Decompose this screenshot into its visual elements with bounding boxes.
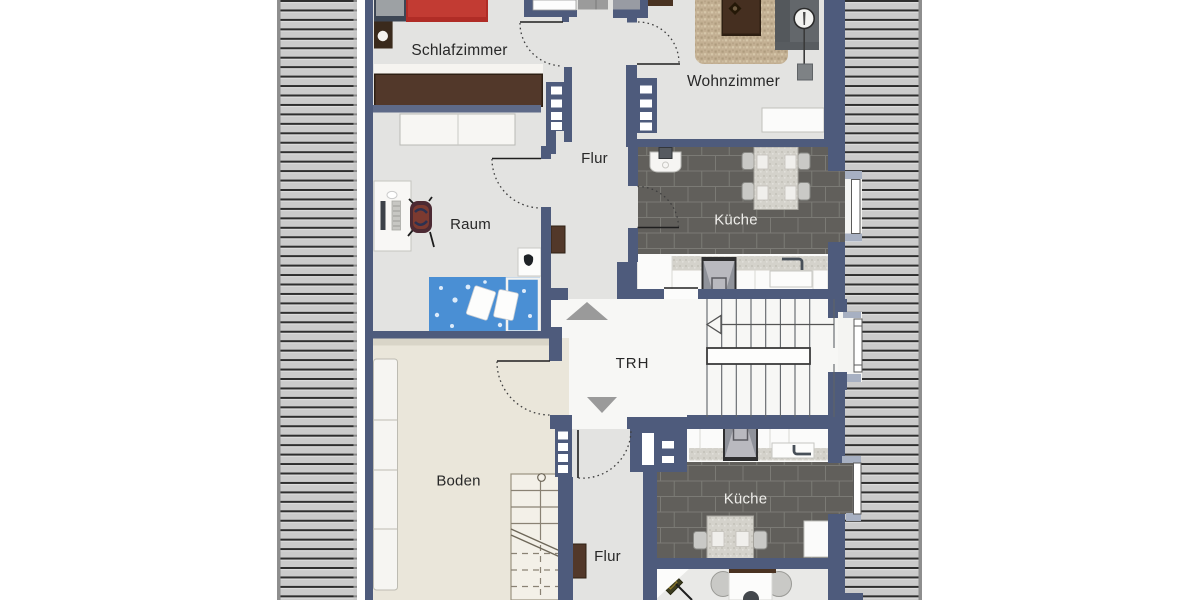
svg-text:Flur: Flur: [594, 548, 621, 565]
svg-text:Flur: Flur: [581, 150, 608, 167]
svg-text:TRH: TRH: [616, 355, 650, 372]
svg-text:Schlafzimmer: Schlafzimmer: [411, 42, 507, 59]
svg-text:Küche: Küche: [714, 212, 758, 229]
svg-text:Raum: Raum: [450, 216, 491, 233]
svg-text:Wohnzimmer: Wohnzimmer: [687, 73, 780, 90]
svg-text:Küche: Küche: [724, 491, 768, 508]
svg-text:Boden: Boden: [436, 473, 480, 490]
